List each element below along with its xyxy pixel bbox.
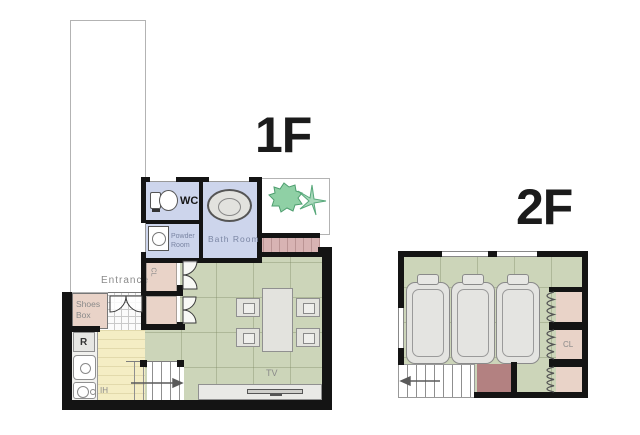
stairs-1f	[126, 361, 184, 402]
entrance-tile-floor	[108, 292, 143, 330]
wall-segment	[62, 292, 72, 410]
pillow-icon	[462, 274, 484, 285]
spiky-plant-icon	[298, 185, 326, 215]
window	[150, 177, 176, 182]
stairs-2f	[398, 364, 475, 398]
powder-room-label-1: Powder	[171, 233, 195, 241]
closet-2f	[556, 292, 582, 322]
pillow-icon	[417, 274, 439, 285]
closet-cl-label: CL	[148, 268, 156, 277]
stair-post	[140, 360, 147, 367]
wall-segment	[549, 287, 588, 292]
stair-post	[177, 360, 184, 367]
bed-icon	[451, 282, 495, 364]
bathtub-icon	[207, 189, 252, 222]
bed-icon	[406, 282, 450, 364]
closet-2f-cl: CL	[556, 330, 582, 359]
wall-segment	[549, 359, 588, 367]
bath-room-label: Bath Room	[208, 235, 260, 245]
ih-stove-icon	[73, 382, 96, 399]
bathroom-block: WC Powder Room Bath Room	[141, 177, 262, 263]
tv-icon-base	[270, 394, 282, 396]
wall-segment	[62, 400, 332, 410]
wall-segment	[177, 285, 183, 292]
pillow-icon	[507, 274, 529, 285]
refrigerator-label: R	[80, 337, 87, 349]
bath-room: Bath Room	[203, 182, 257, 258]
window	[398, 308, 404, 348]
wc-room: WC	[146, 182, 199, 220]
wall-segment	[398, 251, 588, 257]
wall-segment	[549, 322, 588, 330]
toilet-icon	[150, 190, 178, 214]
wall-segment	[322, 252, 332, 410]
floor-plan-canvas: 1F R IH CL Entrance Shoes Box	[0, 0, 640, 435]
window	[209, 177, 249, 182]
wall-segment	[474, 392, 588, 398]
floor1-title: 1F	[255, 110, 311, 160]
floor2-title: 2F	[516, 182, 572, 232]
shoes-box: Shoes Box	[72, 293, 108, 329]
window	[442, 251, 488, 257]
plant-icon	[262, 179, 331, 234]
deck	[256, 233, 320, 257]
powder-room-label-2: Room	[171, 242, 190, 250]
closet-2f-label: CL	[563, 340, 573, 349]
driveway-area	[70, 20, 146, 293]
ih-label: IH	[100, 386, 108, 395]
wc-label: WC	[180, 195, 198, 208]
window	[141, 223, 146, 252]
chair-icon	[236, 298, 260, 317]
shoes-box-label-2: Box	[76, 311, 91, 321]
sink-icon	[73, 355, 96, 380]
chair-icon	[296, 298, 320, 317]
chair-icon	[236, 328, 260, 347]
closet-2f	[556, 367, 582, 392]
wall-segment	[62, 326, 100, 332]
wall-segment	[511, 362, 517, 398]
tv-label: TV	[266, 368, 278, 378]
shoes-box-label-1: Shoes	[76, 300, 100, 310]
powder-room: Powder Room	[146, 224, 199, 258]
washer-icon	[148, 226, 169, 251]
dining-table-icon	[262, 288, 293, 352]
bed-icon	[496, 282, 540, 364]
wall-segment	[177, 322, 183, 330]
garden-area	[261, 178, 330, 235]
window	[497, 251, 537, 257]
chair-icon	[296, 328, 320, 347]
